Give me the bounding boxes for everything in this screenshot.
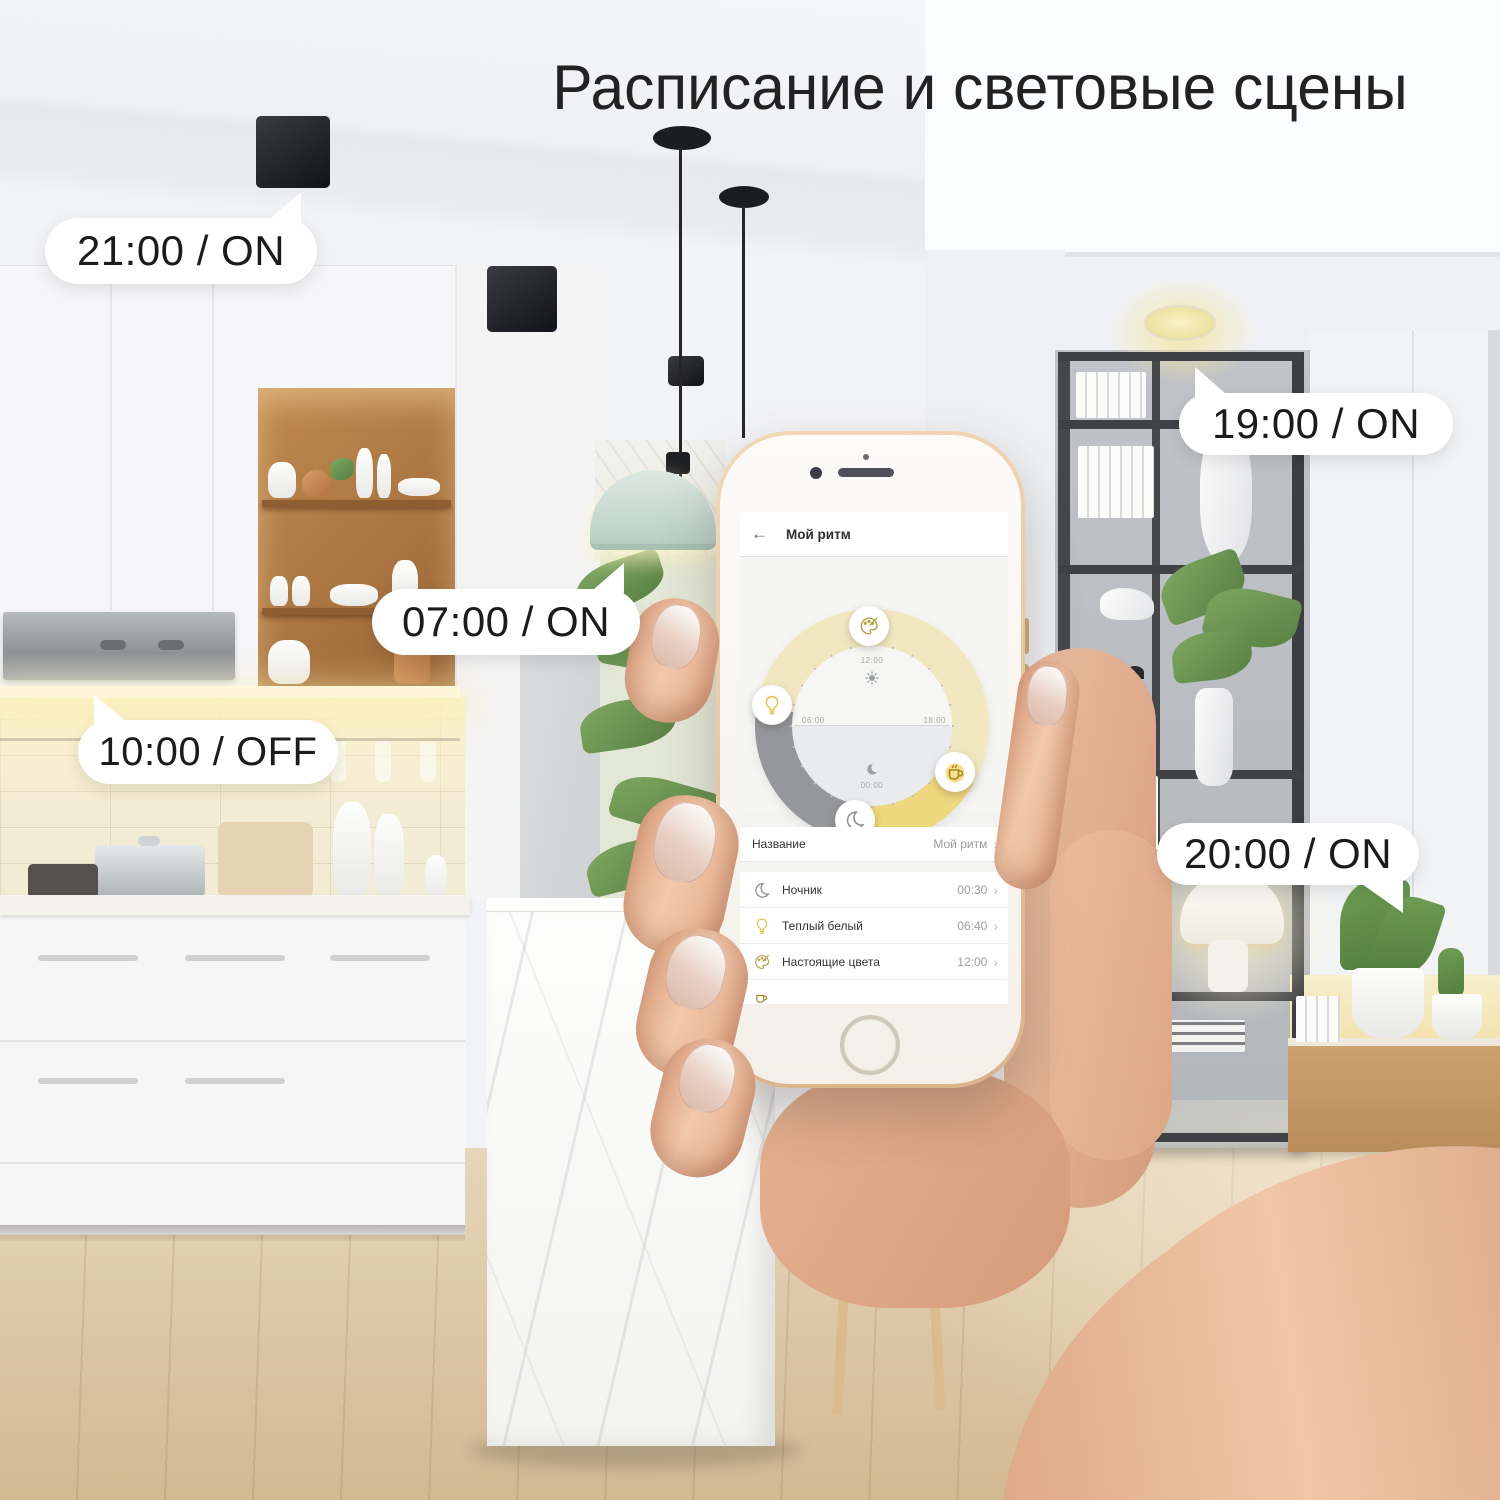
hanging-glass	[420, 742, 436, 782]
scene-row-night-light[interactable]: Ночник 00:30 ›	[740, 872, 1008, 907]
wood-sideboard	[1288, 1038, 1500, 1152]
cube-spotlight	[668, 356, 704, 386]
callout-19-00: 19:00 / ON	[1179, 393, 1453, 455]
hood-control	[158, 640, 184, 650]
name-row[interactable]: Название Мой ритм ›	[740, 827, 1008, 861]
scene-row-partial[interactable]	[740, 980, 1008, 1004]
sun-icon	[863, 669, 881, 687]
cup	[292, 576, 310, 606]
wall-far-edge	[1488, 330, 1500, 1020]
cactus	[1438, 948, 1464, 1000]
page-title: Расписание и световые сцены	[524, 52, 1436, 124]
cup	[270, 576, 288, 606]
palm-below-phone	[760, 1068, 1070, 1308]
knuckles	[1050, 830, 1172, 1160]
cutting-board	[218, 822, 313, 898]
callout-10-00: 10:00 / OFF	[78, 720, 338, 784]
dial-label-midnight: 00:00	[842, 781, 902, 790]
chevron-right-icon: ›	[993, 954, 998, 970]
cup-icon	[943, 760, 967, 784]
scene-time: 00:30	[957, 883, 987, 897]
callout-label: 07:00 / ON	[402, 598, 610, 646]
hood-control	[100, 640, 126, 650]
pendant-mount	[719, 186, 769, 208]
steel-pot	[95, 845, 205, 897]
countertop	[0, 895, 470, 915]
small-bottle	[425, 855, 447, 898]
scene-handle-warm-white[interactable]	[752, 685, 792, 725]
palette-icon	[753, 953, 771, 971]
drawer-handle	[185, 1078, 285, 1084]
smartphone: ← Мой ритм 12:00 06:00 18:00 00:00	[716, 431, 1025, 1088]
phone-bezel: ← Мой ритм 12:00 06:00 18:00 00:00	[720, 435, 1021, 1084]
scene-time: 06:40	[957, 919, 987, 933]
small-plant	[330, 458, 354, 480]
scene-time: 12:00	[957, 955, 987, 969]
shelf	[1058, 352, 1302, 361]
cube-spotlight	[256, 116, 330, 188]
ceiling-beam	[925, 0, 1500, 257]
books	[1296, 996, 1340, 1042]
callout-label: 19:00 / ON	[1212, 400, 1420, 448]
plant-pot	[1352, 968, 1424, 1038]
recessed-ceiling-light	[1144, 305, 1216, 341]
white-jar	[333, 802, 371, 897]
cube-spotlight	[487, 266, 557, 332]
pendant-cord	[742, 206, 745, 438]
app-title: Мой ритм	[786, 527, 851, 542]
vase	[377, 454, 391, 498]
shelf-board	[262, 500, 451, 507]
pendant-fitting	[666, 452, 690, 474]
books	[1076, 372, 1146, 418]
cabinet-seam	[110, 270, 112, 610]
callout-label: 20:00 / ON	[1184, 830, 1392, 878]
scene-row-warm-white[interactable]: Теплый белый 06:40 ›	[740, 908, 1008, 943]
callout-label: 10:00 / OFF	[99, 730, 318, 775]
white-jar	[374, 814, 404, 897]
callout-label: 21:00 / ON	[77, 227, 285, 275]
front-camera	[810, 467, 822, 479]
pot-lid	[138, 836, 160, 846]
dial-label-noon: 12:00	[842, 656, 902, 665]
scene-handle-evening[interactable]	[935, 752, 975, 792]
palette-icon	[858, 615, 880, 637]
copper-kettle	[302, 470, 330, 498]
moon-icon	[865, 762, 879, 776]
name-label: Название	[752, 837, 806, 851]
books	[1078, 446, 1154, 518]
drawer-seam	[0, 1162, 465, 1164]
callout-20-00: 20:00 / ON	[1157, 823, 1419, 885]
hanging-glass	[375, 742, 391, 782]
cup-icon	[752, 988, 770, 1004]
schedule-dial-panel: 12:00 06:00 18:00 00:00	[740, 557, 1008, 813]
cabinet-seam	[212, 270, 214, 610]
bowl	[398, 478, 440, 496]
lower-cabinets	[0, 915, 465, 1235]
scene-handle-true-colors[interactable]	[849, 606, 889, 646]
earpiece-speaker	[838, 468, 894, 477]
plant-pot	[1432, 994, 1482, 1040]
book-stack	[1165, 1020, 1245, 1052]
app-screen: ← Мой ритм 12:00 06:00 18:00 00:00	[740, 512, 1008, 1004]
dial-label-evening: 18:00	[902, 716, 946, 725]
home-button[interactable]	[840, 1015, 900, 1075]
scene-name: Теплый белый	[782, 919, 863, 933]
pendant-mount	[653, 126, 711, 150]
drawer-handle	[330, 955, 430, 961]
drawer-handle	[185, 955, 285, 961]
callout-21-00: 21:00 / ON	[45, 218, 317, 284]
dishes	[268, 640, 310, 684]
drawer-handle	[38, 955, 138, 961]
kickboard-shadow	[0, 1225, 465, 1241]
app-header: ← Мой ритм	[740, 512, 1008, 557]
scene-row-true-colors[interactable]: Настоящие цвета 12:00 ›	[740, 944, 1008, 979]
bowl	[330, 584, 378, 606]
scene-name: Ночник	[782, 883, 822, 897]
under-cabinet-light	[0, 686, 460, 698]
callout-07-00: 07:00 / ON	[372, 589, 640, 655]
chevron-right-icon: ›	[993, 882, 998, 898]
pendant-cord	[679, 148, 682, 478]
sensor-dot	[863, 454, 869, 460]
bulb-icon	[753, 917, 771, 935]
vase	[356, 448, 373, 498]
dark-pan	[28, 864, 98, 898]
back-button[interactable]: ←	[751, 524, 768, 544]
moon-icon	[753, 881, 771, 899]
dish-stack	[268, 462, 296, 498]
marketing-banner: ← Мой ритм 12:00 06:00 18:00 00:00	[0, 0, 1500, 1500]
dial-horizon-line	[794, 725, 950, 726]
faceted-vase	[1195, 688, 1233, 786]
drawer-seam	[0, 1040, 465, 1042]
drawer-handle	[38, 1078, 138, 1084]
bulb-icon	[761, 694, 783, 716]
name-value: Мой ритм	[933, 837, 987, 851]
dial-label-morning: 06:00	[802, 716, 846, 725]
scene-name: Настоящие цвета	[782, 955, 880, 969]
table-lamp-stem	[1208, 940, 1248, 992]
glass-cabinet	[520, 640, 600, 900]
chevron-right-icon: ›	[993, 918, 998, 934]
